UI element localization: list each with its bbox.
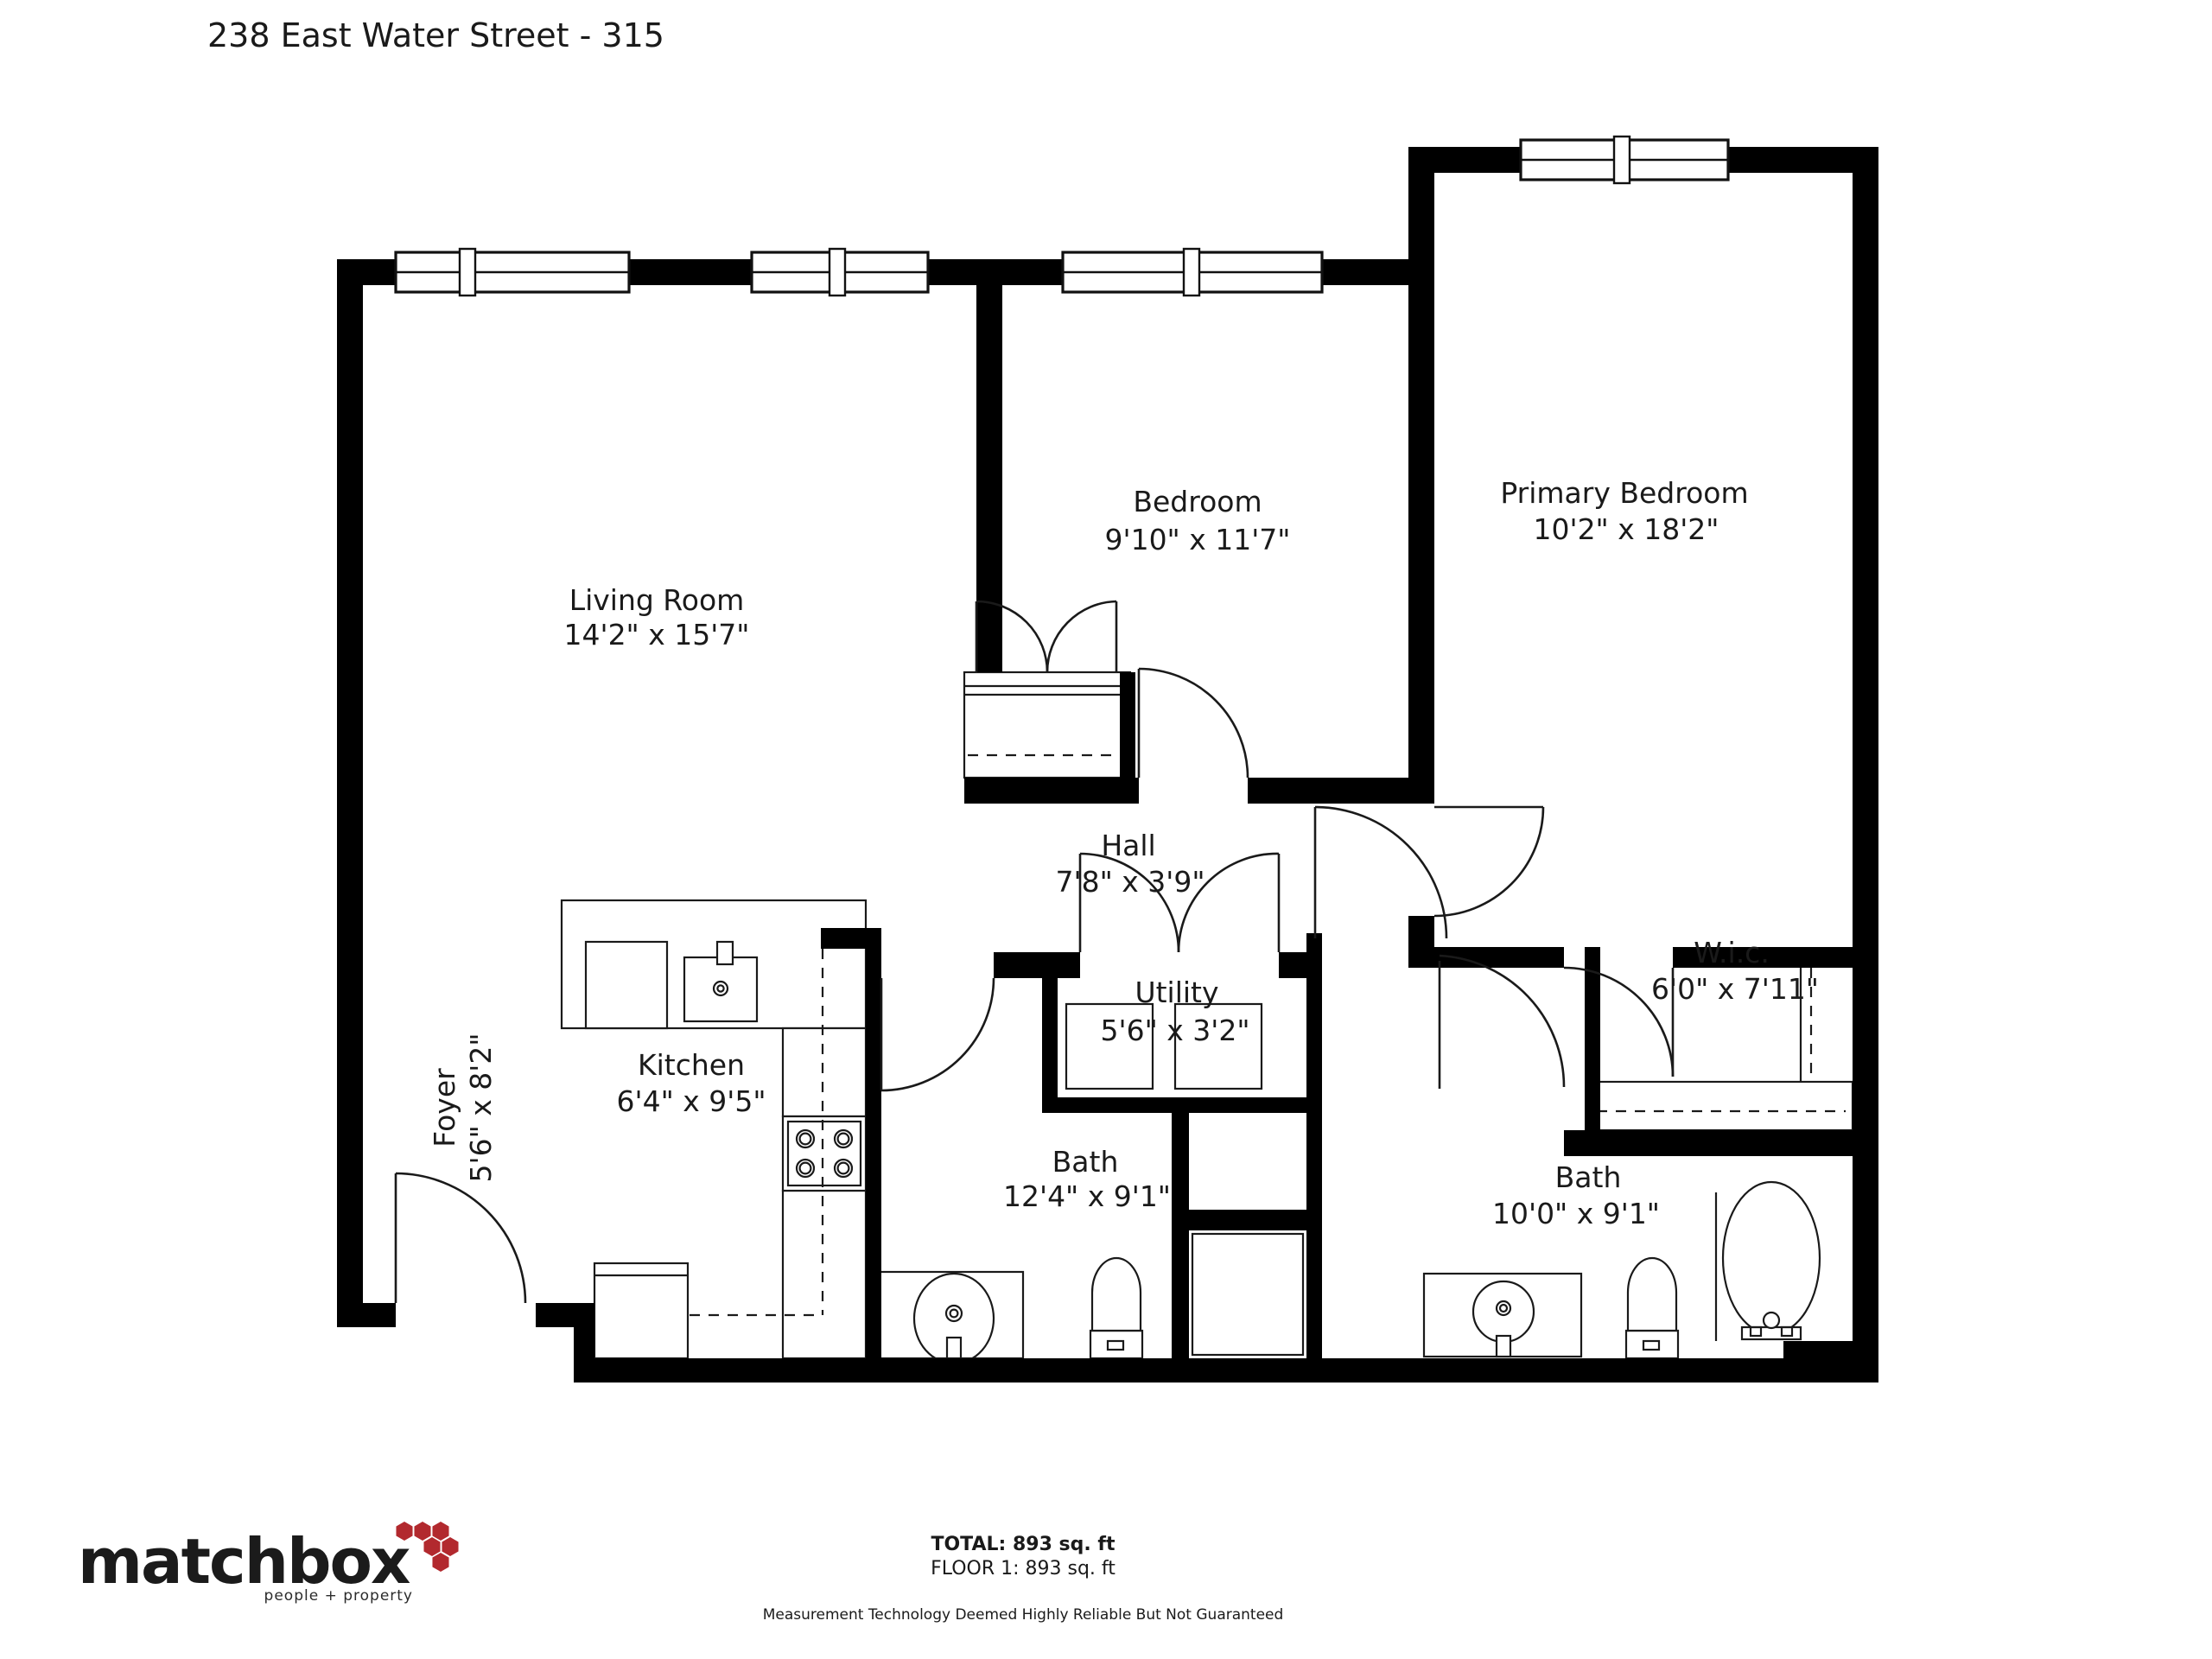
- svg-text:5'6" x 8'2": 5'6" x 8'2": [464, 1033, 498, 1183]
- living-room-window: [752, 249, 928, 296]
- primary-bedroom-door: [1434, 807, 1543, 916]
- kitchen-fixtures: [562, 900, 866, 1358]
- svg-text:10'0" x 9'1": 10'0" x 9'1": [1492, 1197, 1660, 1230]
- kitchen-base-cabinet: [594, 1263, 688, 1358]
- footer: matchbox people + property TOTAL: 893 sq…: [78, 1522, 1283, 1624]
- kitchen-sink: [684, 957, 757, 1021]
- page-title: 238 East Water Street - 315: [207, 16, 664, 54]
- disclaimer: Measurement Technology Deemed Highly Rel…: [763, 1606, 1284, 1624]
- floor-plan: 238 East Water Street - 315: [0, 0, 2212, 1659]
- closet-shelf: [964, 672, 1130, 778]
- bath-main-label: Bath 12'4" x 9'1": [1003, 1145, 1171, 1213]
- kitchen-counter-strip: [783, 1191, 866, 1358]
- svg-text:6'4" x 9'5": 6'4" x 9'5": [617, 1084, 766, 1118]
- svg-text:Bath: Bath: [1052, 1145, 1119, 1179]
- faucet-icon: [947, 1338, 961, 1358]
- living-room-window: [396, 249, 629, 296]
- svg-text:Bedroom: Bedroom: [1133, 485, 1262, 518]
- bedroom-closet: [964, 672, 1130, 778]
- kitchen-label: Kitchen 6'4" x 9'5": [617, 1048, 766, 1118]
- bathtub-icon: [1716, 1182, 1820, 1341]
- kitchen-counter-strip: [783, 1028, 866, 1116]
- bedroom-door: [1139, 669, 1248, 778]
- svg-text:5'6" x 3'2": 5'6" x 3'2": [1101, 1014, 1250, 1047]
- entry-door: [396, 1173, 525, 1303]
- svg-text:7'8" x 3'9": 7'8" x 3'9": [1056, 865, 1205, 899]
- svg-text:Utility: Utility: [1135, 976, 1218, 1009]
- total-area: TOTAL: 893 sq. ft: [931, 1534, 1116, 1555]
- shower-closet: [1192, 1234, 1303, 1355]
- svg-text:12'4" x 9'1": 12'4" x 9'1": [1003, 1179, 1171, 1213]
- foyer-label: Foyer 5'6" x 8'2": [428, 1033, 498, 1183]
- matchbox-logo: matchbox people + property: [78, 1522, 459, 1605]
- toilet-icon: [1090, 1258, 1142, 1358]
- bath-second-label: Bath 10'0" x 9'1": [1492, 1160, 1660, 1230]
- bath-main-fixtures: [878, 1234, 1303, 1363]
- hall-label: Hall 7'8" x 3'9": [1056, 829, 1205, 899]
- svg-text:Hall: Hall: [1101, 829, 1155, 862]
- svg-text:9'10" x 11'7": 9'10" x 11'7": [1105, 523, 1291, 556]
- bath-main-door: [881, 978, 994, 1090]
- svg-text:6'0" x 7'11": 6'0" x 7'11": [1651, 972, 1819, 1006]
- living-room-label: Living Room 14'2" x 15'7": [564, 583, 750, 652]
- svg-text:W.i.c.: W.i.c.: [1694, 936, 1770, 969]
- svg-text:Foyer: Foyer: [428, 1068, 461, 1147]
- stove: [783, 1116, 866, 1191]
- kitchen-sink-faucet-icon: [717, 942, 733, 964]
- svg-text:14'2" x 15'7": 14'2" x 15'7": [564, 618, 750, 652]
- svg-text:Living Room: Living Room: [569, 583, 745, 617]
- svg-text:Primary Bedroom: Primary Bedroom: [1500, 476, 1748, 510]
- svg-text:Kitchen: Kitchen: [638, 1048, 745, 1082]
- bath-second-door: [1440, 956, 1564, 1089]
- primary-bedroom-window: [1521, 137, 1728, 183]
- wic-label: W.i.c. 6'0" x 7'11": [1651, 936, 1819, 1006]
- kitchen-appliance: [586, 942, 667, 1028]
- svg-text:10'2" x 18'2": 10'2" x 18'2": [1534, 512, 1719, 546]
- windows: [396, 137, 1728, 296]
- faucet-icon: [1497, 1336, 1510, 1357]
- primary-bedroom-label: Primary Bedroom 10'2" x 18'2": [1500, 476, 1748, 546]
- logo-tagline: people + property: [264, 1587, 413, 1605]
- wic-shelf: [1590, 1082, 1853, 1130]
- floor-area: FLOOR 1: 893 sq. ft: [931, 1558, 1116, 1580]
- svg-text:Bath: Bath: [1555, 1160, 1622, 1194]
- bedroom-window: [1063, 249, 1322, 296]
- bedroom-label: Bedroom 9'10" x 11'7": [1105, 485, 1291, 556]
- toilet-icon: [1626, 1258, 1678, 1358]
